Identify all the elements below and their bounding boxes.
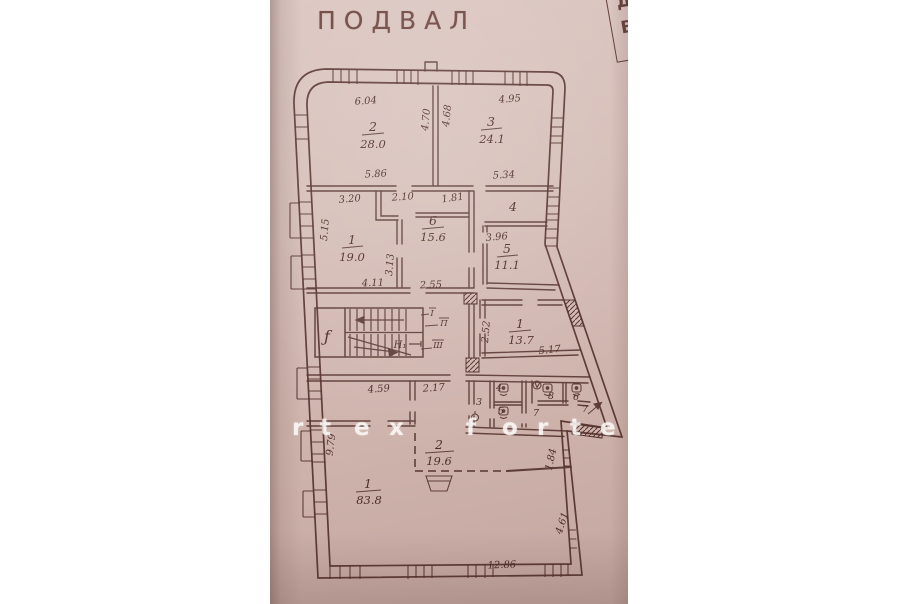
floor-plan-photo: ПОДВАЛ Д В (270, 0, 628, 604)
dim-hall-top: 4.59 (366, 383, 391, 396)
room-number: 1 (364, 476, 372, 491)
room-number: 4 (508, 199, 517, 214)
room-area: 28.0 (359, 137, 386, 151)
room-number: 5 (503, 241, 511, 256)
basin-icon (472, 411, 479, 421)
room-number: 2 (434, 437, 443, 452)
screenshot: ПОДВАЛ Д В (0, 0, 900, 604)
dim-corridor-right: 1.81 (441, 192, 465, 206)
dim-room3-bottom: 5.34 (492, 169, 515, 181)
section-tag: Ш (432, 341, 443, 351)
dim-hall-corridor: 2.17 (421, 382, 446, 395)
sink-icon (426, 476, 452, 491)
dim-room6-bottom: 2.55 (419, 280, 443, 292)
dim-room6-left: 3.13 (384, 253, 397, 276)
staircase-icon (315, 308, 423, 357)
dim-corridor-mid: 2.10 (390, 191, 415, 204)
wc-room-number: 8 (548, 391, 554, 402)
dim-room2-top: 6.04 (354, 95, 377, 108)
room-area: 15.6 (420, 230, 446, 244)
wc-room-number: 7 (533, 408, 540, 419)
wc-room-number: 3 (476, 397, 482, 408)
dim-hall-left: 9.79 (325, 432, 339, 456)
wc-room-number: 7 (582, 404, 589, 415)
section-tag: П (439, 319, 448, 329)
room-number: 1 (516, 316, 524, 331)
plan-title: ПОДВАЛ (317, 6, 476, 35)
dim-room3-wall: 4.68 (441, 104, 454, 128)
dim-room1-left: 5.15 (319, 218, 332, 241)
room-number: 6 (429, 213, 437, 228)
room-area: 19.0 (339, 250, 365, 264)
stair-mark: Н₁ (393, 340, 407, 351)
room-area: 19.6 (426, 454, 452, 468)
dim-room1-top: 3.20 (338, 193, 362, 206)
stamp-letter-bottom: В (620, 13, 628, 37)
room-area: 83.8 (356, 493, 382, 507)
room-number: 3 (487, 114, 495, 129)
dim-room2-bottom: 5.86 (364, 168, 387, 180)
room-area: 13.7 (508, 333, 534, 347)
wc-room-number: 4 (495, 383, 502, 394)
dim-room1-bottom: 4.11 (361, 278, 385, 290)
dim-room3-top: 4.95 (497, 93, 521, 106)
room-number: 2 (368, 119, 377, 134)
wc-room-number: 6 (573, 392, 579, 403)
floor-plan-drawing: 6.04 4.70 4.68 4.95 5.86 5.34 3.20 2.10 … (270, 0, 628, 604)
dim-bottom: 12.86 (487, 559, 517, 571)
dim-room2-wall: 4.70 (420, 107, 433, 132)
script-mark: ƒ (321, 327, 333, 346)
wc-room-number: 5 (498, 406, 504, 417)
section-tag: I (429, 309, 434, 319)
room-area: 11.1 (494, 258, 520, 272)
dim-room13-left: 2.52 (480, 320, 493, 344)
room-number: 1 (348, 232, 356, 247)
room-area: 24.1 (478, 132, 505, 146)
stamp-letter-top: Д (615, 0, 628, 12)
